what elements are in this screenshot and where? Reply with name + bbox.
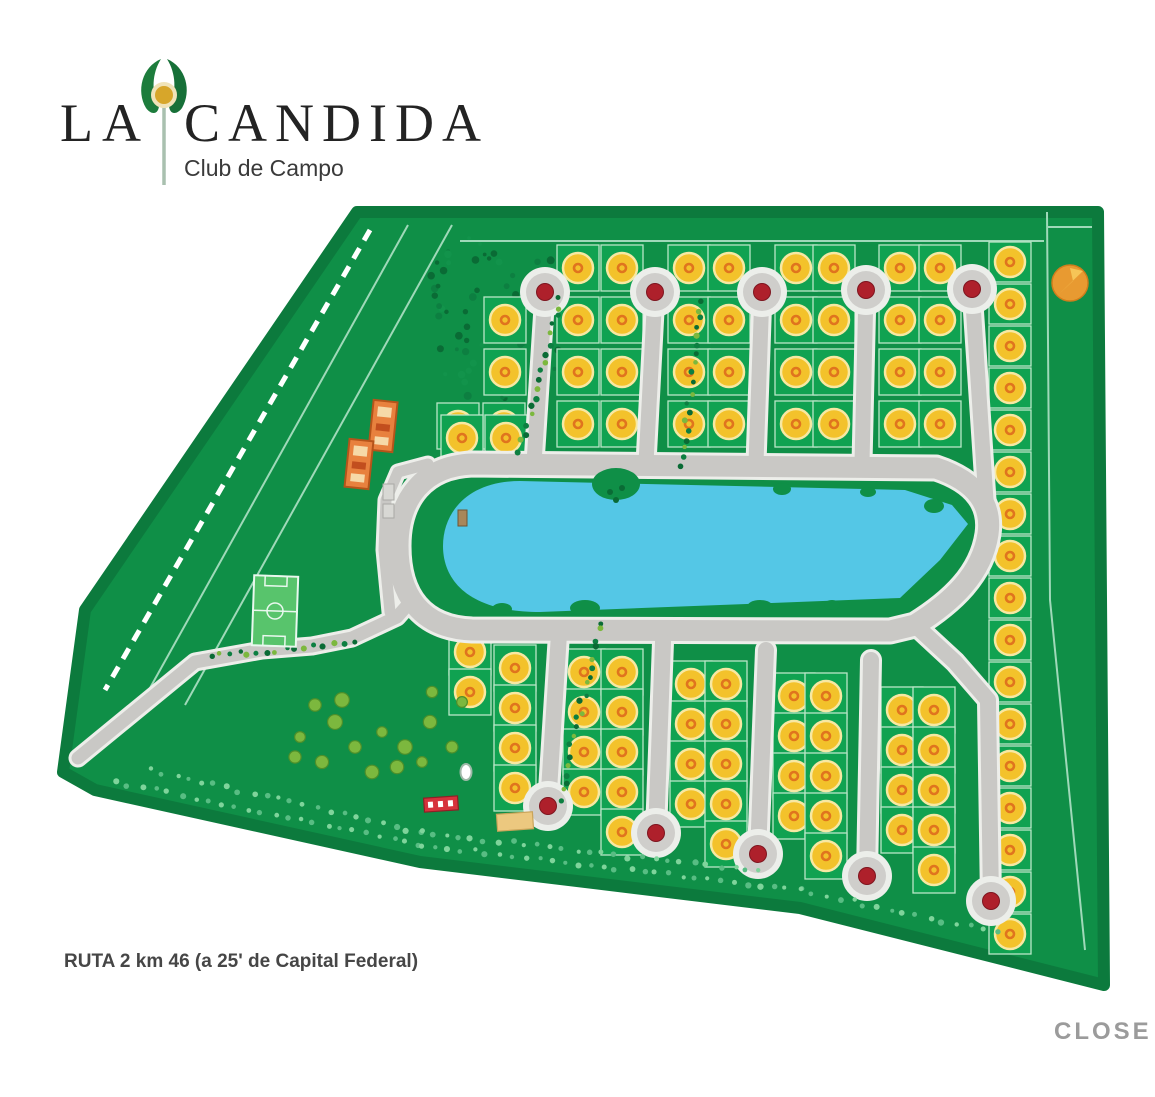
cul-de-sac-center [983, 893, 1000, 910]
lot-marker [811, 721, 841, 751]
lot-marker [490, 357, 520, 387]
lot-marker [811, 681, 841, 711]
lot-marker [995, 583, 1025, 613]
cul-de-sac-center [754, 284, 771, 301]
cul-de-sac [630, 267, 680, 317]
lot-parcel [805, 793, 847, 839]
lot-parcel [989, 410, 1031, 450]
lake-shore-bump [592, 468, 640, 500]
cul-de-sac [737, 267, 787, 317]
lot-marker [925, 305, 955, 335]
lot-marker [569, 777, 599, 807]
lot-parcel [705, 741, 747, 787]
lot-parcel [879, 401, 921, 447]
lot-marker [563, 357, 593, 387]
tree-cluster [390, 760, 403, 773]
lot-parcel [601, 769, 643, 815]
lot-marker [819, 357, 849, 387]
lot-parcel [913, 767, 955, 813]
lot-marker [500, 653, 530, 683]
lot-parcel [705, 701, 747, 747]
lot-marker [607, 777, 637, 807]
lot-marker [490, 305, 520, 335]
lot-parcel [601, 349, 643, 395]
lot-parcel [913, 807, 955, 853]
cul-de-sac-center [537, 284, 554, 301]
lot-marker [919, 735, 949, 765]
cul-de-sac [631, 808, 681, 858]
lot-marker [885, 409, 915, 439]
lot-parcel [913, 847, 955, 893]
lot-marker [674, 253, 704, 283]
cul-de-sac [841, 265, 891, 315]
lot-parcel [775, 401, 817, 447]
lot-marker [811, 761, 841, 791]
lot-parcel [708, 401, 750, 447]
cul-de-sac-center [648, 825, 665, 842]
lot-marker [500, 733, 530, 763]
lot-marker [885, 253, 915, 283]
lot-marker [781, 357, 811, 387]
lot-marker [995, 289, 1025, 319]
lot-marker [919, 695, 949, 725]
lot-parcel [919, 349, 961, 395]
compass-icon [1052, 265, 1088, 301]
lot-parcel [563, 729, 605, 775]
lot-marker [491, 423, 521, 453]
lot-marker [995, 247, 1025, 277]
lot-marker [607, 357, 637, 387]
cul-de-sac [947, 264, 997, 314]
lot-parcel [913, 687, 955, 733]
lot-parcel [601, 649, 643, 695]
lot-marker [676, 709, 706, 739]
soccer-field [252, 575, 298, 646]
lot-parcel [557, 349, 599, 395]
lot-marker [811, 801, 841, 831]
lot-marker [919, 815, 949, 845]
tree-cluster [426, 686, 437, 697]
tree-cluster [457, 697, 468, 708]
lot-marker [714, 357, 744, 387]
lot-marker [607, 737, 637, 767]
gatehouse [383, 484, 394, 500]
lot-parcel [563, 649, 605, 695]
lot-marker [500, 693, 530, 723]
lot-marker [714, 305, 744, 335]
lot-parcel [484, 297, 526, 343]
cul-de-sac [842, 851, 892, 901]
lightbox-page: LA CANDIDA Club de Campo RUTA 2 km 46 (a… [0, 0, 1155, 1097]
tree-cluster [365, 765, 379, 779]
lot-marker [714, 253, 744, 283]
lot-parcel [989, 620, 1031, 660]
lot-marker [563, 253, 593, 283]
lot-parcel [708, 349, 750, 395]
lot-marker [781, 305, 811, 335]
lot-marker [885, 357, 915, 387]
tree-cluster [417, 757, 428, 768]
lot-parcel [813, 349, 855, 395]
tree-cluster [309, 699, 322, 712]
cul-de-sac [520, 267, 570, 317]
lot-parcel [449, 669, 491, 715]
tree-cluster [328, 715, 343, 730]
tree-cluster [315, 755, 328, 768]
lot-marker [781, 409, 811, 439]
lot-parcel [601, 689, 643, 735]
cul-de-sac-center [540, 798, 557, 815]
lot-parcel [494, 725, 536, 771]
lake-water [443, 481, 968, 612]
lot-parcel [989, 242, 1031, 282]
clubhouse-building [345, 439, 374, 489]
lot-marker [919, 775, 949, 805]
cul-de-sac-center [858, 282, 875, 299]
lake-shore-bump [924, 499, 944, 513]
tree-cluster [289, 751, 301, 763]
lot-marker [447, 423, 477, 453]
tree-cluster [349, 741, 362, 754]
lot-marker [607, 657, 637, 687]
lot-marker [919, 855, 949, 885]
lot-marker [995, 457, 1025, 487]
lot-parcel [484, 349, 526, 395]
lot-parcel [705, 781, 747, 827]
cul-de-sac-center [647, 284, 664, 301]
lot-parcel [913, 727, 955, 773]
lot-parcel [705, 661, 747, 707]
play-structure [424, 796, 459, 812]
lot-marker [995, 415, 1025, 445]
lot-marker [995, 667, 1025, 697]
lake-pier [458, 510, 467, 526]
cul-de-sac-center [964, 281, 981, 298]
lake-shore-bump [570, 600, 600, 616]
lot-marker [676, 789, 706, 819]
lot-marker [885, 305, 915, 335]
lot-marker [563, 305, 593, 335]
lot-parcel [919, 401, 961, 447]
lot-parcel [494, 685, 536, 731]
lot-marker [569, 697, 599, 727]
lake-shore-bump [773, 483, 791, 495]
lot-marker [995, 373, 1025, 403]
tree-cluster [335, 693, 350, 708]
lot-marker [711, 709, 741, 739]
tree-cluster [446, 741, 458, 753]
lake-shore-bump [824, 600, 840, 610]
lot-marker [714, 409, 744, 439]
lot-marker [563, 409, 593, 439]
cul-de-sac-center [750, 846, 767, 863]
lot-marker [819, 305, 849, 335]
lake-shore-bump [860, 487, 876, 497]
lot-marker [607, 305, 637, 335]
lot-parcel [805, 833, 847, 879]
lot-parcel [813, 401, 855, 447]
lot-marker [711, 669, 741, 699]
cul-de-sac [966, 876, 1016, 926]
lot-marker [607, 253, 637, 283]
gatehouse [383, 504, 394, 518]
lot-parcel [563, 689, 605, 735]
lot-marker [995, 709, 1025, 739]
lot-parcel [989, 368, 1031, 408]
lot-marker [995, 625, 1025, 655]
lot-marker [569, 737, 599, 767]
small-landmark [461, 764, 472, 780]
tree-cluster [398, 740, 413, 755]
lot-parcel [805, 673, 847, 719]
tree-cluster [295, 732, 306, 743]
lot-marker [995, 331, 1025, 361]
lot-marker [781, 253, 811, 283]
lot-parcel [989, 326, 1031, 366]
lot-parcel [601, 729, 643, 775]
lot-marker [569, 657, 599, 687]
lot-marker [711, 789, 741, 819]
route-caption: RUTA 2 km 46 (a 25' de Capital Federal) [64, 951, 418, 973]
lot-parcel [775, 349, 817, 395]
lot-parcel [557, 401, 599, 447]
lot-parcel [879, 349, 921, 395]
lot-parcel [805, 713, 847, 759]
cul-de-sac-center [859, 868, 876, 885]
sand-court [496, 812, 533, 831]
lot-parcel [989, 578, 1031, 618]
lot-marker [676, 749, 706, 779]
lot-marker [607, 409, 637, 439]
site-map [0, 0, 1155, 1097]
lot-marker [711, 749, 741, 779]
lot-parcel [494, 645, 536, 691]
lake-shore-bump [747, 600, 773, 614]
lot-marker [811, 841, 841, 871]
lot-marker [925, 357, 955, 387]
lot-marker [925, 409, 955, 439]
lot-marker [607, 697, 637, 727]
tree-cluster [377, 727, 388, 738]
lot-parcel [805, 753, 847, 799]
lot-marker [995, 541, 1025, 571]
lot-marker [676, 669, 706, 699]
lake [443, 468, 968, 616]
lake-shore-bump [492, 603, 512, 615]
close-button[interactable]: CLOSE [1054, 1018, 1152, 1046]
tree-cluster [423, 715, 436, 728]
lot-marker [819, 409, 849, 439]
